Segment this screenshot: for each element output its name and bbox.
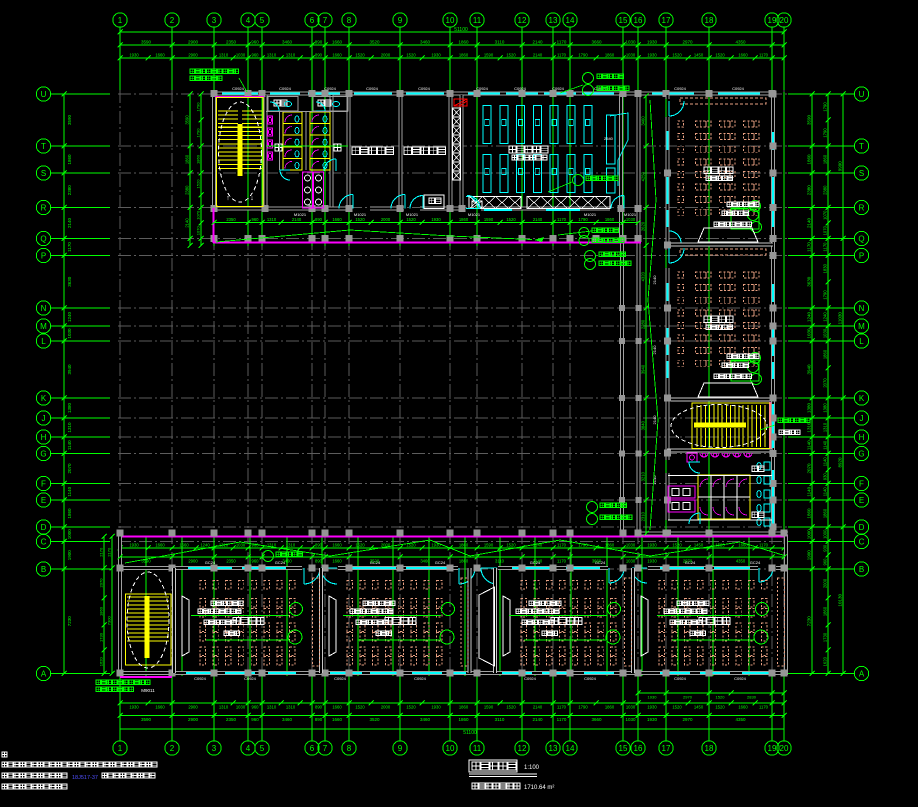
svg-text:1170: 1170 <box>759 53 769 58</box>
svg-text:1930: 1930 <box>431 217 441 222</box>
svg-text:1310: 1310 <box>267 705 277 710</box>
svg-text:P: P <box>859 252 864 261</box>
svg-text:17: 17 <box>662 744 671 753</box>
svg-text:2900: 2900 <box>188 40 199 45</box>
svg-text:3940: 3940 <box>641 364 646 374</box>
svg-text:2380: 2380 <box>807 185 812 196</box>
svg-text:2140: 2140 <box>533 53 543 58</box>
svg-text:1860: 1860 <box>458 717 469 722</box>
svg-text:K: K <box>859 394 865 403</box>
svg-text:1520: 1520 <box>406 705 416 710</box>
svg-text:20: 20 <box>780 744 789 753</box>
svg-text:3630: 3630 <box>67 276 72 287</box>
svg-text:R: R <box>41 204 47 213</box>
svg-text:2380: 2380 <box>823 185 828 195</box>
svg-text:2070: 2070 <box>807 463 812 474</box>
svg-text:1930: 1930 <box>647 543 657 548</box>
svg-text:C0924: C0924 <box>418 86 431 91</box>
svg-text:1660: 1660 <box>179 543 189 548</box>
svg-text:M: M <box>858 322 865 331</box>
svg-text:4350: 4350 <box>735 40 746 45</box>
svg-text:1140: 1140 <box>807 440 812 450</box>
svg-text:1860: 1860 <box>459 217 469 222</box>
svg-text:F: F <box>859 480 864 489</box>
svg-text:2540: 2540 <box>604 136 614 141</box>
svg-text:1: 1 <box>118 744 123 753</box>
svg-text:1860: 1860 <box>185 154 190 164</box>
svg-text:2140: 2140 <box>652 275 657 285</box>
svg-text:11: 11 <box>473 16 482 25</box>
svg-text:T: T <box>859 142 864 151</box>
svg-text:T: T <box>41 142 46 151</box>
svg-text:3660: 3660 <box>592 559 602 564</box>
svg-text:3660: 3660 <box>591 717 602 722</box>
svg-text:M1021: M1021 <box>294 212 307 217</box>
svg-text:C0924: C0924 <box>366 86 379 91</box>
svg-text:1170: 1170 <box>557 717 567 722</box>
svg-text:1520: 1520 <box>406 53 416 58</box>
svg-text:2970: 2970 <box>683 559 693 564</box>
svg-text:2350: 2350 <box>226 217 236 222</box>
svg-text:C: C <box>41 538 47 547</box>
svg-text:11: 11 <box>473 744 482 753</box>
svg-text:1660: 1660 <box>332 40 343 45</box>
svg-text:1520: 1520 <box>715 53 725 58</box>
svg-text:M1021: M1021 <box>624 212 637 217</box>
svg-text:2: 2 <box>170 16 175 25</box>
svg-text:1520: 1520 <box>672 705 682 710</box>
svg-text:1520: 1520 <box>716 695 726 700</box>
svg-text:2970: 2970 <box>682 40 693 45</box>
svg-text:1520: 1520 <box>355 217 365 222</box>
svg-text:16: 16 <box>634 16 643 25</box>
svg-text:1170: 1170 <box>807 242 812 252</box>
svg-text:3590: 3590 <box>141 40 152 45</box>
svg-text:C0924: C0924 <box>514 86 527 91</box>
svg-text:2000: 2000 <box>381 217 391 222</box>
svg-text:1140: 1140 <box>67 440 72 450</box>
svg-text:3460: 3460 <box>282 40 293 45</box>
svg-text:C: C <box>859 538 865 547</box>
svg-text:1930: 1930 <box>431 705 441 710</box>
svg-text:1790: 1790 <box>823 290 828 300</box>
svg-text:2140: 2140 <box>533 217 543 222</box>
svg-text:51100: 51100 <box>463 730 477 736</box>
svg-text:2070: 2070 <box>99 578 104 588</box>
svg-text:16: 16 <box>634 744 643 753</box>
svg-text:1520: 1520 <box>355 53 365 58</box>
svg-text:2350: 2350 <box>226 717 237 722</box>
svg-text:1310: 1310 <box>267 217 277 222</box>
svg-text:7230: 7230 <box>807 616 812 627</box>
svg-text:1730: 1730 <box>99 632 104 642</box>
svg-text:L: L <box>859 337 864 346</box>
svg-text:960: 960 <box>252 53 260 58</box>
svg-text:10130: 10130 <box>838 593 843 606</box>
svg-text:18: 18 <box>705 16 714 25</box>
svg-text:2000: 2000 <box>381 705 391 710</box>
svg-text:1380: 1380 <box>807 402 812 413</box>
svg-text:1520: 1520 <box>506 543 516 548</box>
svg-text:1030: 1030 <box>626 53 636 58</box>
svg-text:1860: 1860 <box>196 154 201 164</box>
svg-text:890: 890 <box>315 40 323 45</box>
svg-text:1030: 1030 <box>236 705 246 710</box>
svg-text:3940: 3940 <box>807 364 812 375</box>
svg-text:1860: 1860 <box>459 559 469 564</box>
svg-text:3520: 3520 <box>369 40 380 45</box>
svg-text:1860: 1860 <box>823 154 828 164</box>
svg-text:1070: 1070 <box>196 226 201 236</box>
svg-text:2170: 2170 <box>107 547 112 557</box>
svg-text:7: 7 <box>323 744 328 753</box>
svg-text:3590: 3590 <box>141 559 151 564</box>
svg-text:1930: 1930 <box>647 705 657 710</box>
svg-text:1730: 1730 <box>823 632 828 642</box>
svg-text:1790: 1790 <box>578 705 588 710</box>
svg-text:1660: 1660 <box>332 53 342 58</box>
svg-text:14: 14 <box>566 16 575 25</box>
svg-text:C0924: C0924 <box>232 86 245 91</box>
svg-text:20: 20 <box>780 16 789 25</box>
svg-text:1520: 1520 <box>672 543 682 548</box>
svg-text:1860: 1860 <box>823 508 828 518</box>
svg-text:2380: 2380 <box>185 185 190 195</box>
svg-text:3: 3 <box>212 744 217 753</box>
svg-text:1170: 1170 <box>557 40 567 45</box>
svg-text:18: 18 <box>705 744 714 753</box>
svg-text:3110: 3110 <box>495 40 505 45</box>
svg-text:2830: 2830 <box>747 695 757 700</box>
svg-text:C0924: C0924 <box>279 86 292 91</box>
svg-text:1310: 1310 <box>286 705 296 710</box>
svg-text:1170: 1170 <box>67 242 72 252</box>
svg-text:1310: 1310 <box>219 53 229 58</box>
svg-text:1380: 1380 <box>67 402 72 413</box>
svg-text:1140: 1140 <box>823 487 828 497</box>
svg-text:1660: 1660 <box>155 705 165 710</box>
svg-text:2970: 2970 <box>683 695 693 700</box>
svg-text:1660: 1660 <box>332 217 342 222</box>
svg-text:1520: 1520 <box>355 705 365 710</box>
svg-text:1000: 1000 <box>807 529 812 540</box>
svg-text:3590: 3590 <box>807 114 812 125</box>
svg-text:3630: 3630 <box>807 276 812 287</box>
svg-text:6: 6 <box>310 16 315 25</box>
svg-text:18J517-37: 18J517-37 <box>72 775 98 781</box>
svg-text:15: 15 <box>619 744 628 753</box>
svg-text:C0924: C0924 <box>244 676 257 681</box>
svg-text:2310: 2310 <box>641 511 646 521</box>
svg-text:1590: 1590 <box>484 217 494 222</box>
svg-text:2170: 2170 <box>99 547 104 557</box>
svg-text:A: A <box>41 670 47 679</box>
svg-text:1930: 1930 <box>129 543 139 548</box>
svg-text:2900: 2900 <box>188 53 198 58</box>
svg-text:1590: 1590 <box>484 53 494 58</box>
svg-text:4250: 4250 <box>641 171 646 181</box>
svg-text:3110: 3110 <box>495 559 505 564</box>
svg-text:4: 4 <box>246 16 251 25</box>
svg-text:2140: 2140 <box>67 217 72 228</box>
svg-text:2140: 2140 <box>807 217 812 228</box>
svg-text:1860: 1860 <box>459 53 469 58</box>
svg-text:1930: 1930 <box>431 543 441 548</box>
svg-text:D: D <box>41 523 47 532</box>
svg-text:2140: 2140 <box>532 717 543 722</box>
svg-text:1620: 1620 <box>99 657 104 667</box>
svg-text:1030: 1030 <box>626 705 636 710</box>
svg-text:E: E <box>859 496 864 505</box>
svg-text:7300: 7300 <box>107 616 112 626</box>
svg-text:960: 960 <box>251 40 259 45</box>
svg-text:1170: 1170 <box>759 705 769 710</box>
svg-text:7230: 7230 <box>67 616 72 627</box>
svg-text:2140: 2140 <box>533 705 543 710</box>
svg-text:1830: 1830 <box>823 263 828 273</box>
svg-text:890: 890 <box>315 705 323 710</box>
svg-text:1860: 1860 <box>807 154 812 165</box>
svg-text:F: F <box>41 480 46 489</box>
svg-text:930: 930 <box>823 544 828 552</box>
svg-text:C0924: C0924 <box>734 676 747 681</box>
svg-text:1930: 1930 <box>647 53 657 58</box>
svg-text:4350: 4350 <box>735 717 746 722</box>
svg-text:3520: 3520 <box>369 717 380 722</box>
svg-text:3460: 3460 <box>282 559 292 564</box>
svg-text:9: 9 <box>398 744 403 753</box>
svg-text:1860: 1860 <box>99 606 104 616</box>
svg-text:1310: 1310 <box>823 422 828 432</box>
svg-text:Q: Q <box>40 235 46 244</box>
svg-text:2070: 2070 <box>823 378 828 388</box>
svg-text:M1021: M1021 <box>468 212 481 217</box>
svg-text:1860: 1860 <box>823 349 828 359</box>
svg-text:1140: 1140 <box>807 486 812 496</box>
svg-text:2140: 2140 <box>533 559 543 564</box>
svg-text:1660: 1660 <box>332 559 342 564</box>
svg-text:8920: 8920 <box>838 457 843 468</box>
svg-text:M9011: M9011 <box>141 688 155 693</box>
svg-text:2900: 2900 <box>188 705 198 710</box>
svg-text:1590: 1590 <box>484 705 494 710</box>
svg-text:1660: 1660 <box>738 53 748 58</box>
svg-text:C0924: C0924 <box>674 676 687 681</box>
svg-text:2970: 2970 <box>682 717 693 722</box>
svg-text:K: K <box>41 394 47 403</box>
svg-text:1860: 1860 <box>807 508 812 519</box>
svg-text:C0924: C0924 <box>324 86 337 91</box>
svg-text:3940: 3940 <box>67 364 72 375</box>
svg-text:↑: ↑ <box>226 195 230 202</box>
svg-text:6: 6 <box>310 744 315 753</box>
svg-text:J: J <box>42 414 46 423</box>
svg-text:960: 960 <box>252 705 260 710</box>
svg-text:1140: 1140 <box>67 486 72 496</box>
svg-text:P: P <box>41 252 46 261</box>
svg-text:1660: 1660 <box>332 717 343 722</box>
svg-text:1240: 1240 <box>807 311 812 322</box>
svg-text:1030: 1030 <box>67 328 72 339</box>
svg-text:1310: 1310 <box>286 53 296 58</box>
svg-text:2140: 2140 <box>292 217 302 222</box>
svg-text:1900: 1900 <box>807 550 812 561</box>
svg-text:1860: 1860 <box>458 40 469 45</box>
svg-text:2: 2 <box>170 744 175 753</box>
svg-text:C0924: C0924 <box>414 676 427 681</box>
svg-text:1860: 1860 <box>67 154 72 165</box>
svg-text:890: 890 <box>315 53 323 58</box>
svg-text:1930: 1930 <box>129 705 139 710</box>
svg-text:5: 5 <box>260 744 265 753</box>
svg-text:GC24: GC24 <box>435 560 446 565</box>
svg-text:3590: 3590 <box>185 115 190 125</box>
svg-text:1030: 1030 <box>236 543 246 548</box>
svg-text:19: 19 <box>768 744 777 753</box>
svg-text:1860: 1860 <box>605 543 615 548</box>
svg-text:1240: 1240 <box>823 312 828 322</box>
svg-text:U: U <box>41 90 47 99</box>
svg-text:1790: 1790 <box>578 53 588 58</box>
svg-text:C0924: C0924 <box>584 676 597 681</box>
svg-text:1000: 1000 <box>67 529 72 540</box>
svg-text:N: N <box>41 304 47 313</box>
svg-text:1520: 1520 <box>715 705 725 710</box>
svg-text:1240: 1240 <box>67 311 72 322</box>
svg-text:1930: 1930 <box>648 695 658 700</box>
svg-text:960: 960 <box>252 559 260 564</box>
svg-text:930: 930 <box>823 473 828 481</box>
svg-text:890: 890 <box>315 559 323 564</box>
svg-text:9990: 9990 <box>838 161 843 172</box>
svg-text:890: 890 <box>315 717 323 722</box>
svg-text:1170: 1170 <box>823 242 828 252</box>
svg-text:H: H <box>859 433 865 442</box>
svg-text:1660: 1660 <box>155 543 165 548</box>
svg-text:1930: 1930 <box>647 559 657 564</box>
svg-text:8: 8 <box>347 16 352 25</box>
svg-text:1030: 1030 <box>626 559 636 564</box>
svg-text:3460: 3460 <box>282 717 293 722</box>
svg-text:↓: ↓ <box>250 195 254 202</box>
svg-text:3460: 3460 <box>420 40 431 45</box>
svg-text:2140: 2140 <box>652 415 657 425</box>
svg-text:C0924: C0924 <box>552 86 565 91</box>
svg-text:C0924: C0924 <box>524 676 537 681</box>
svg-text:1520: 1520 <box>506 705 516 710</box>
svg-text:960: 960 <box>251 717 259 722</box>
svg-text:S: S <box>859 169 864 178</box>
svg-text:3110: 3110 <box>495 717 505 722</box>
svg-text:1860: 1860 <box>67 508 72 519</box>
svg-text:1520: 1520 <box>672 53 682 58</box>
svg-text:3590: 3590 <box>67 114 72 125</box>
svg-text:1710.64 m²: 1710.64 m² <box>524 785 554 791</box>
svg-text:1790: 1790 <box>823 102 828 112</box>
svg-text:M1021: M1021 <box>584 212 597 217</box>
svg-text:9: 9 <box>398 16 403 25</box>
svg-text:E: E <box>41 496 46 505</box>
svg-text:1660: 1660 <box>738 705 748 710</box>
svg-text:14: 14 <box>566 744 575 753</box>
svg-text:3590: 3590 <box>141 717 152 722</box>
svg-text:1170: 1170 <box>759 543 769 548</box>
svg-text:C0924: C0924 <box>194 676 207 681</box>
svg-text:M1021: M1021 <box>406 212 419 217</box>
svg-text:C0924: C0924 <box>334 676 347 681</box>
svg-text:1310: 1310 <box>267 53 277 58</box>
svg-text:1140: 1140 <box>823 440 828 450</box>
svg-text:1930: 1930 <box>129 53 139 58</box>
svg-text:1140: 1140 <box>823 457 828 467</box>
svg-text:M1021: M1021 <box>354 212 367 217</box>
svg-text:GC24: GC24 <box>205 560 216 565</box>
svg-text:10: 10 <box>446 744 455 753</box>
svg-text:1860: 1860 <box>605 217 615 222</box>
svg-text:13: 13 <box>549 16 558 25</box>
svg-text:1790: 1790 <box>578 217 588 222</box>
svg-text:1450: 1450 <box>694 543 704 548</box>
svg-text:D: D <box>859 523 865 532</box>
svg-text:1310: 1310 <box>219 705 229 710</box>
svg-text:51100: 51100 <box>454 27 468 33</box>
svg-text:2900: 2900 <box>188 559 198 564</box>
svg-text:7: 7 <box>323 16 328 25</box>
svg-text:2350: 2350 <box>226 40 237 45</box>
svg-text:1790: 1790 <box>196 128 201 138</box>
svg-text:2140: 2140 <box>652 475 657 485</box>
svg-text:2000: 2000 <box>823 578 828 588</box>
svg-text:C0924: C0924 <box>732 86 745 91</box>
svg-text:890: 890 <box>315 543 323 548</box>
svg-text:960: 960 <box>252 217 260 222</box>
svg-text:2350: 2350 <box>226 559 236 564</box>
svg-text:GC24: GC24 <box>750 560 761 565</box>
svg-text:4320: 4320 <box>641 271 646 281</box>
svg-text:1170: 1170 <box>557 543 567 548</box>
svg-text:1660: 1660 <box>332 705 342 710</box>
svg-text:2280: 2280 <box>641 319 646 329</box>
svg-text:3840: 3840 <box>641 420 646 430</box>
svg-text:2620: 2620 <box>641 221 646 231</box>
svg-text:M: M <box>40 322 47 331</box>
svg-text:1380: 1380 <box>823 403 828 413</box>
svg-text:2140: 2140 <box>185 218 190 228</box>
svg-text:3210: 3210 <box>641 471 646 481</box>
svg-text:1030: 1030 <box>625 40 636 45</box>
svg-text:1520: 1520 <box>196 179 201 189</box>
svg-text:1030: 1030 <box>626 543 636 548</box>
svg-text:3520: 3520 <box>370 559 380 564</box>
svg-text:1170: 1170 <box>557 705 567 710</box>
svg-text:1520: 1520 <box>406 217 416 222</box>
svg-text:1030: 1030 <box>236 53 246 58</box>
svg-text:1520: 1520 <box>355 543 365 548</box>
svg-text:1: 1 <box>118 16 123 25</box>
svg-text:5: 5 <box>260 16 265 25</box>
svg-text:1000: 1000 <box>823 529 828 539</box>
svg-text:8: 8 <box>347 744 352 753</box>
svg-text:1:100: 1:100 <box>524 765 540 771</box>
svg-text:1310: 1310 <box>807 422 812 433</box>
svg-text:1310: 1310 <box>67 422 72 433</box>
svg-text:4350: 4350 <box>736 559 746 564</box>
svg-text:890: 890 <box>315 217 323 222</box>
svg-text:17: 17 <box>662 16 671 25</box>
svg-text:H: H <box>41 433 47 442</box>
svg-text:Q: Q <box>858 235 864 244</box>
svg-text:G: G <box>858 450 864 459</box>
